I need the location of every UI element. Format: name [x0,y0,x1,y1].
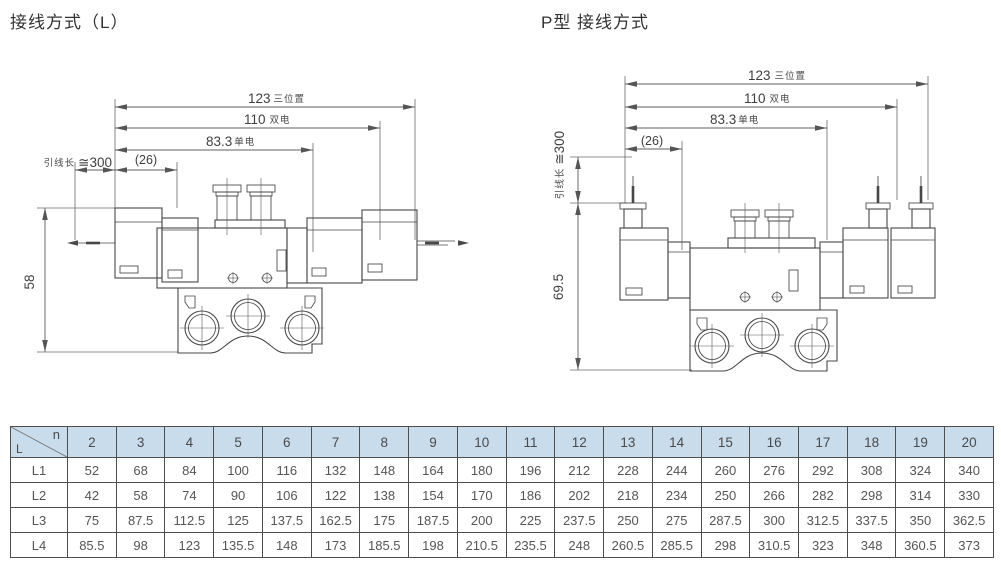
table-cell: 112.5 [165,508,214,533]
fitting [213,178,241,235]
lead-wires [417,240,469,246]
base-corner-mark-right [817,318,827,330]
base-corner-mark-left [697,318,707,330]
table-cell: 175 [360,508,409,533]
p-dim-110-label: 110双电 [744,91,791,106]
l-type-valve-body [157,178,287,288]
p-type-drawing: 123三位置 110双电 83.3单电 (26) 引线长≅300 69.5 [551,68,935,371]
table-row: L485.598123135.5148173185.5198210.5235.5… [11,533,994,558]
l-type-drawing: 123三位置 110双电 83.3单电 (26) 引线长≅300 58 [22,91,469,353]
table-col-header: 12 [555,427,604,458]
table-cell: 42 [68,483,117,508]
table-col-header: 17 [799,427,848,458]
table-cell: 285.5 [652,533,701,558]
table-cell: 137.5 [262,508,311,533]
port-circle [226,294,270,338]
table-cell: 52 [68,458,117,483]
table-header-row: n L 234567891011121314151617181920 [11,427,994,458]
table-cell: 187.5 [409,508,458,533]
table-cell: 75 [68,508,117,533]
technical-drawings: 123三位置 110双电 83.3单电 (26) 引线长≅300 58 [0,0,1001,420]
table-col-header: 4 [165,427,214,458]
l-dim-110-label: 110双电 [244,112,291,127]
screw [227,272,239,284]
table-col-header: 16 [750,427,799,458]
p-lead-length-label: 引线长≅300 [552,131,567,199]
table-cell: 74 [165,483,214,508]
table-cell: 138 [360,483,409,508]
table-cell: 87.5 [116,508,165,533]
p-dim-83-label: 83.3单电 [710,112,759,127]
table-cell: 186 [506,483,555,508]
table-cell: 292 [799,458,848,483]
lead-wires [67,240,115,246]
table-cell: 218 [604,483,653,508]
p-type-right-solenoids [820,176,935,298]
table-cell: 260 [701,458,750,483]
table-col-header: 20 [945,427,994,458]
lead-tip [67,240,78,246]
port-circle [180,306,224,350]
table-cell: 250 [701,483,750,508]
table-cell: 58 [116,483,165,508]
table-cell: 298 [847,483,896,508]
table-body: L152688410011613214816418019621222824426… [11,458,994,558]
p-dim-26-label: (26) [641,134,663,148]
dimension-table-container: n L 234567891011121314151617181920 L1526… [10,426,994,558]
table-cell: 275 [652,508,701,533]
p-type-valve-body [690,203,820,310]
table-row: L152688410011613214816418019621222824426… [11,458,994,483]
table-cell: 202 [555,483,604,508]
table-cell: 234 [652,483,701,508]
l-dim-height-label: 58 [22,274,37,289]
p-dim-123-label: 123三位置 [748,68,806,83]
p-type-manifold-base [690,310,837,371]
p-dim-height-label: 69.5 [551,274,566,300]
l-dim-83-label: 83.3单电 [206,134,255,149]
fitting [731,203,759,253]
l-type-manifold-base [178,288,324,353]
table-cell: 180 [457,458,506,483]
table-col-header: 6 [262,427,311,458]
table-col-header: 8 [360,427,409,458]
table-col-header: 14 [652,427,701,458]
table-cell: 198 [409,533,458,558]
table-cell: 200 [457,508,506,533]
table-cell: 248 [555,533,604,558]
table-cell: 123 [165,533,214,558]
screw [739,291,751,303]
port-circle [740,313,784,357]
table-col-header: 7 [311,427,360,458]
row-label: L1 [11,458,68,483]
table-cell: 68 [116,458,165,483]
table-cell: 276 [750,458,799,483]
table-row: L242587490106122138154170186202218234250… [11,483,994,508]
table-cell: 212 [555,458,604,483]
p-type-left-solenoid [620,176,690,300]
table-col-header: 15 [701,427,750,458]
table-cell: 235.5 [506,533,555,558]
base-corner-mark-left [185,296,195,308]
table-cell: 210.5 [457,533,506,558]
table-cell: 324 [896,458,945,483]
table-cell: 185.5 [360,533,409,558]
table-cell: 196 [506,458,555,483]
row-label: L3 [11,508,68,533]
table-col-header: 9 [409,427,458,458]
table-col-header: 11 [506,427,555,458]
dimension-table: n L 234567891011121314151617181920 L1526… [10,426,994,558]
l-lead-length-label: 引线长≅300 [44,155,112,170]
table-cell: 360.5 [896,533,945,558]
table-cell: 373 [945,533,994,558]
table-cell: 282 [799,483,848,508]
table-cell: 173 [311,533,360,558]
table-cell: 310.5 [750,533,799,558]
table-col-header: 2 [68,427,117,458]
table-col-header: 5 [214,427,263,458]
table-cell: 100 [214,458,263,483]
table-cell: 90 [214,483,263,508]
table-cell: 154 [409,483,458,508]
corner-label-l: L [16,442,23,456]
corner-label-n: n [53,427,60,442]
table-cell: 162.5 [311,508,360,533]
table-cell: 98 [116,533,165,558]
lead-tip [458,240,469,246]
table-cell: 132 [311,458,360,483]
l-dim-26-label: (26) [135,153,157,167]
table-cell: 125 [214,508,263,533]
table-cell: 312.5 [799,508,848,533]
l-dim-123-label: 123三位置 [248,91,305,106]
table-cell: 116 [262,458,311,483]
table-cell: 164 [409,458,458,483]
table-cell: 170 [457,483,506,508]
table-cell: 225 [506,508,555,533]
table-cell: 340 [945,458,994,483]
table-cell: 250 [604,508,653,533]
table-cell: 348 [847,533,896,558]
fitting [247,178,275,235]
table-cell: 148 [360,458,409,483]
table-cell: 106 [262,483,311,508]
table-col-header: 10 [457,427,506,458]
table-cell: 148 [262,533,311,558]
table-cell: 314 [896,483,945,508]
table-col-header: 13 [604,427,653,458]
table-col-header: 3 [116,427,165,458]
base-corner-mark-right [305,296,315,308]
catalog-page: 接线方式（L） P型 接线方式 [0,0,1001,563]
table-cell: 350 [896,508,945,533]
port-circle [690,324,734,368]
table-cell: 122 [311,483,360,508]
table-cell: 298 [701,533,750,558]
table-cell: 228 [604,458,653,483]
table-cell: 260.5 [604,533,653,558]
table-row: L37587.5112.5125137.5162.5175187.5200225… [11,508,994,533]
table-cell: 237.5 [555,508,604,533]
table-cell: 308 [847,458,896,483]
table-cell: 330 [945,483,994,508]
table-cell: 287.5 [701,508,750,533]
table-cell: 266 [750,483,799,508]
table-cell: 323 [799,533,848,558]
port-circle [280,306,324,350]
table-col-header: 18 [847,427,896,458]
corner-cell: n L [11,427,68,458]
table-cell: 300 [750,508,799,533]
fitting [765,203,793,253]
table-cell: 135.5 [214,533,263,558]
table-cell: 85.5 [68,533,117,558]
l-type-left-solenoid [67,208,198,282]
table-cell: 84 [165,458,214,483]
table-cell: 362.5 [945,508,994,533]
screw [771,291,783,303]
table-cell: 337.5 [847,508,896,533]
l-type-right-solenoids [287,210,469,283]
screw [261,272,273,284]
row-label: L2 [11,483,68,508]
table-col-header: 19 [896,427,945,458]
row-label: L4 [11,533,68,558]
table-cell: 244 [652,458,701,483]
